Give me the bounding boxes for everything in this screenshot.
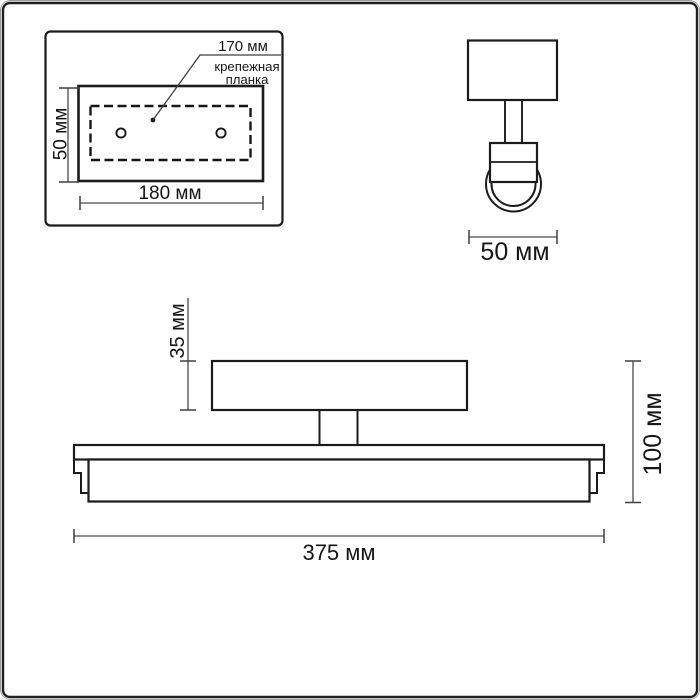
light-bar-body [89, 460, 590, 502]
front-view-total-height-label: 100 мм [639, 392, 667, 475]
side-view-width-label: 50 мм [480, 238, 549, 266]
holes-spacing-label: 170 мм [218, 38, 268, 55]
front-view-plate-height-label: 35 мм [167, 303, 189, 358]
top-view-width-label: 180 мм [138, 183, 201, 204]
light-bar-top-strip [74, 445, 604, 460]
dimension-drawing: 170 мм крепежная планка 50 мм 180 мм [0, 0, 700, 700]
mounting-plate-front-view [212, 361, 467, 410]
bracket-caption-line2: планка [226, 72, 270, 87]
dimension-drawing-page: 170 мм крепежная планка 50 мм 180 мм [0, 0, 700, 700]
screw-hole-right [216, 128, 225, 137]
wall-plate-side-view [468, 41, 557, 101]
front-view-total-width-label: 375 мм [302, 540, 375, 565]
top-view-height-label: 50 мм [51, 108, 72, 161]
mounting-plate-top-view [79, 86, 264, 181]
screw-hole-left [116, 128, 125, 137]
